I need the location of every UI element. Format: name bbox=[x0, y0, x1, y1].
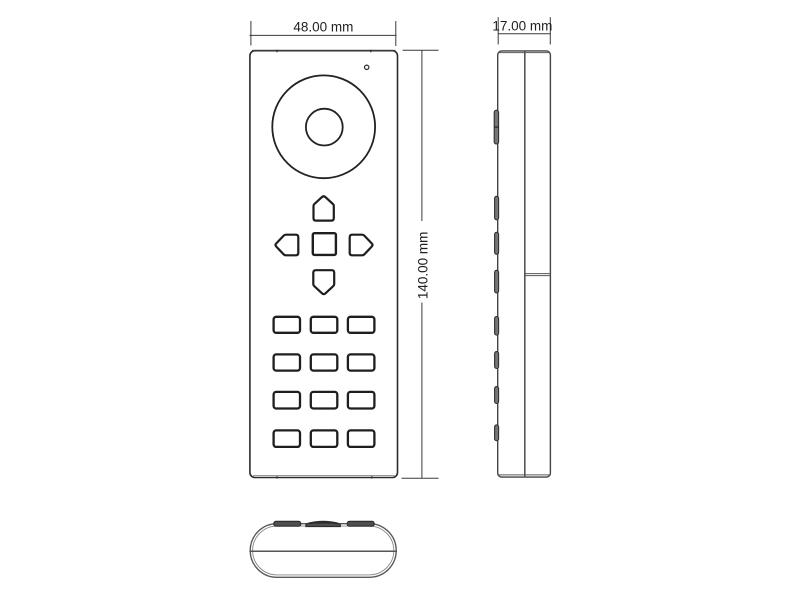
svg-text:140.00 mm: 140.00 mm bbox=[416, 232, 431, 300]
svg-text:17.00 mm: 17.00 mm bbox=[492, 19, 552, 34]
svg-text:48.00 mm: 48.00 mm bbox=[293, 20, 353, 35]
